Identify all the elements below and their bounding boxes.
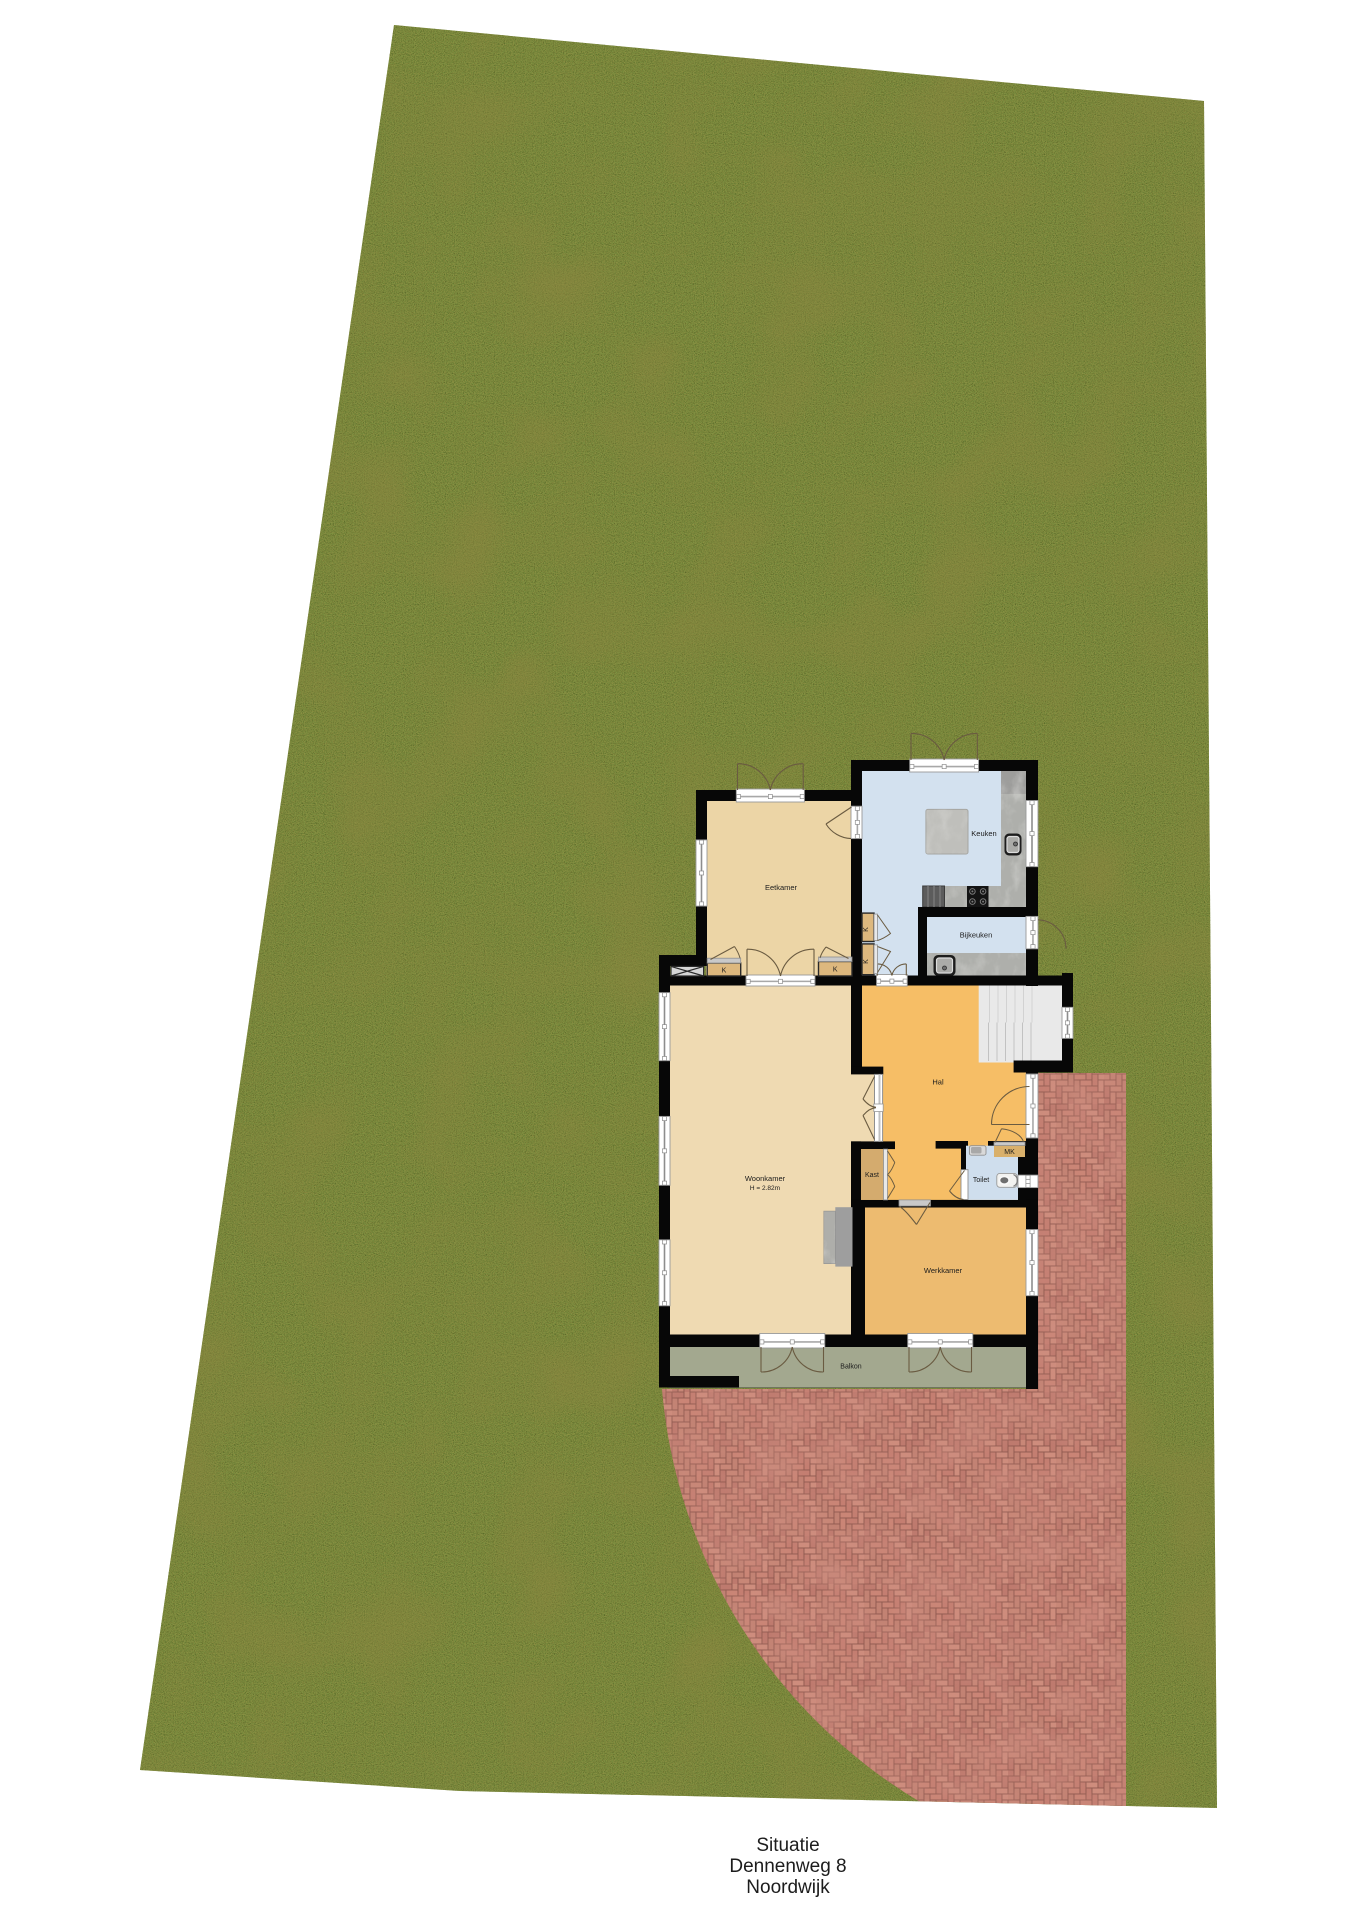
svg-text:Bijkeuken: Bijkeuken — [960, 931, 993, 940]
svg-text:H = 2.82m: H = 2.82m — [750, 1185, 780, 1192]
svg-text:K: K — [863, 927, 870, 932]
svg-text:Toilet: Toilet — [973, 1177, 989, 1184]
svg-text:Keuken: Keuken — [971, 829, 996, 838]
svg-text:MK: MK — [1004, 1149, 1015, 1156]
svg-text:K: K — [833, 967, 838, 974]
svg-text:Woonkamer: Woonkamer — [745, 1174, 786, 1183]
svg-text:Werkkamer: Werkkamer — [924, 1266, 963, 1275]
svg-text:K: K — [863, 959, 870, 964]
svg-text:Hal: Hal — [932, 1078, 944, 1087]
svg-text:Noordwijk: Noordwijk — [746, 1877, 830, 1898]
svg-text:Eetkamer: Eetkamer — [765, 883, 798, 892]
svg-text:Kast: Kast — [865, 1172, 879, 1179]
svg-text:K: K — [722, 968, 727, 975]
svg-text:Situatie: Situatie — [756, 1835, 819, 1856]
svg-text:Dennenweg 8: Dennenweg 8 — [729, 1856, 846, 1877]
svg-text:Balkon: Balkon — [840, 1364, 862, 1371]
